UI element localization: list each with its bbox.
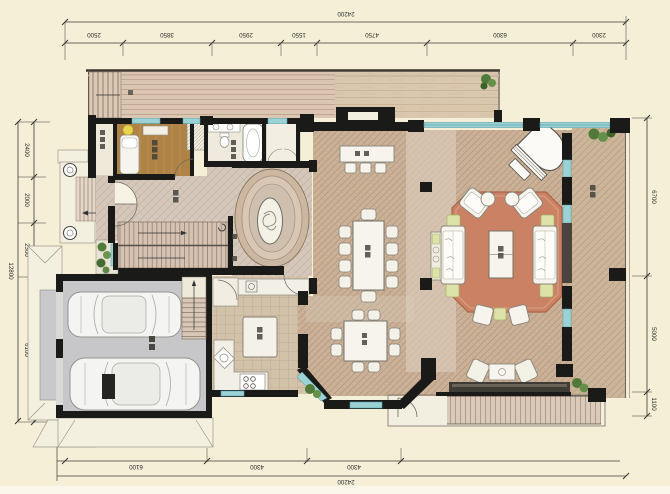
svg-text:3850: 3850	[160, 31, 174, 38]
svg-text:6100: 6100	[129, 463, 143, 470]
svg-text:12800: 12800	[7, 262, 14, 280]
svg-text:24200: 24200	[337, 10, 355, 17]
svg-text:4300: 4300	[347, 463, 361, 470]
svg-text:24200: 24200	[337, 478, 355, 485]
svg-text:2400: 2400	[23, 143, 30, 157]
svg-text:2000: 2000	[23, 193, 30, 207]
svg-text:5000: 5000	[650, 327, 657, 341]
svg-text:1100: 1100	[650, 397, 657, 411]
svg-text:1550: 1550	[292, 31, 306, 38]
svg-text:2300: 2300	[592, 31, 606, 38]
svg-text:4300: 4300	[250, 463, 264, 470]
svg-text:6700: 6700	[650, 190, 657, 204]
svg-text:2950: 2950	[239, 31, 253, 38]
svg-text:6300: 6300	[493, 31, 507, 38]
svg-text:4750: 4750	[365, 31, 379, 38]
svg-text:2500: 2500	[87, 31, 101, 38]
